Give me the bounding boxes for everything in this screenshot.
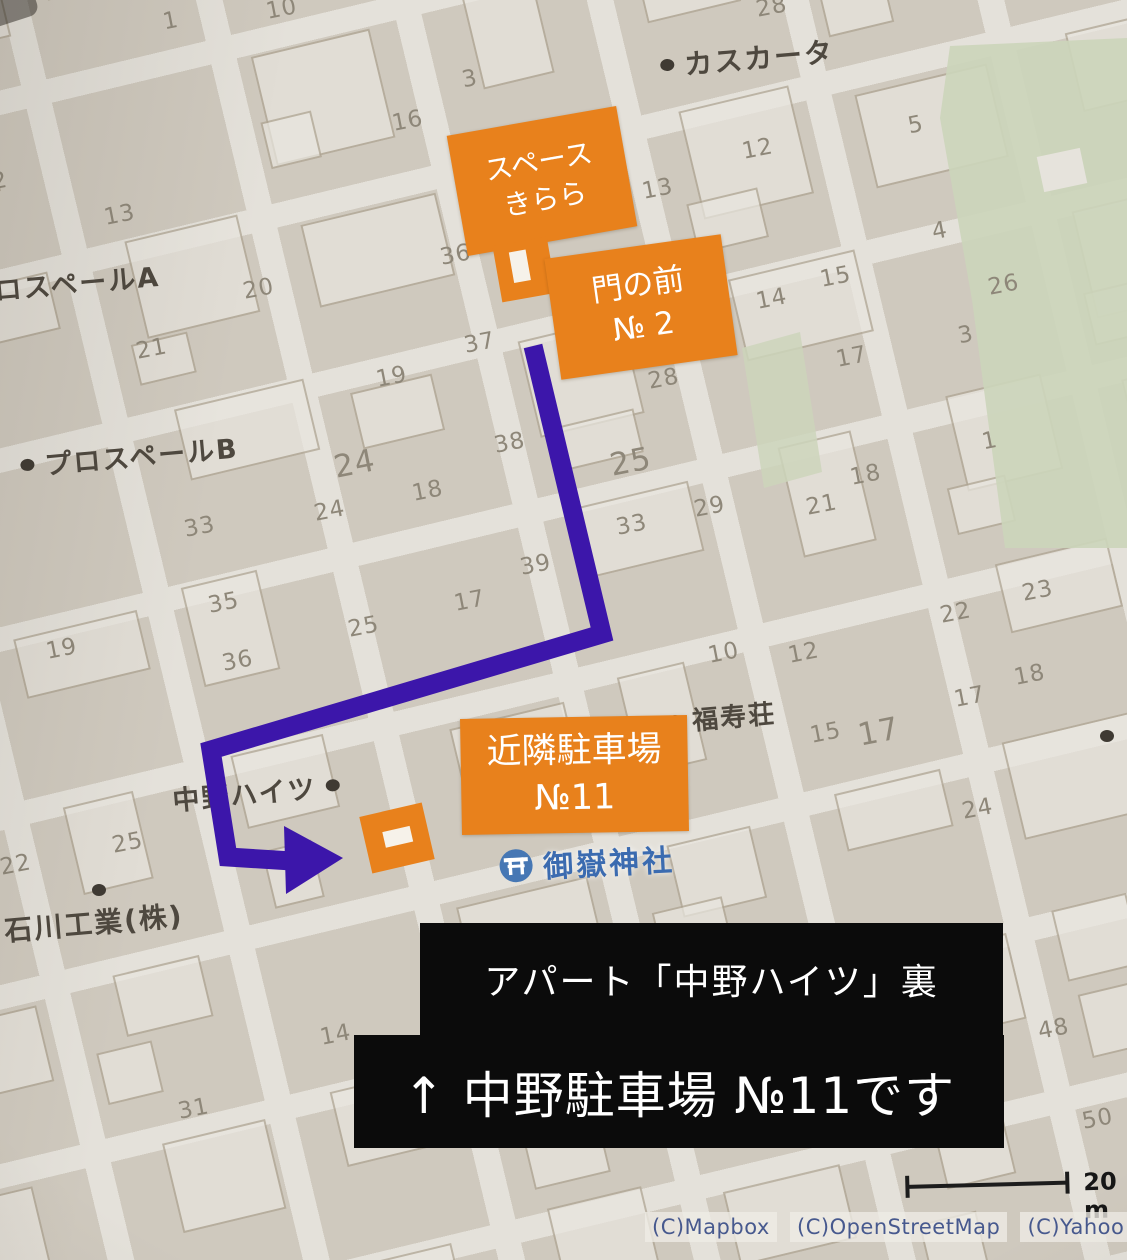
caption-apartment-note: アパート「中野ハイツ」裏 bbox=[420, 923, 1003, 1035]
caption-text: アパート「中野ハイツ」裏 bbox=[484, 953, 939, 1005]
map-photo: 御嶽神社 スペース きらら 門の前 № 2 近隣駐車場 №11 アパート「中野ハ… bbox=[0, 0, 1127, 1260]
building-block bbox=[260, 110, 322, 169]
building-block bbox=[300, 193, 455, 308]
building-block bbox=[1065, 13, 1127, 112]
building-block bbox=[262, 840, 325, 909]
building-block bbox=[1051, 893, 1127, 982]
building-block bbox=[995, 537, 1123, 633]
building-block bbox=[1121, 351, 1127, 460]
building-block bbox=[629, 0, 741, 23]
torii-icon bbox=[497, 847, 535, 885]
caption-parking-note: ↑ 中野駐車場 №11です bbox=[354, 1035, 1004, 1148]
map-credits: (C)Mapbox (C)OpenStreetMap (C)Yahoo Japa bbox=[645, 1215, 1127, 1239]
parking-slot-mark bbox=[509, 250, 531, 283]
building-block bbox=[13, 610, 151, 699]
annotation-gate-front: 門の前 № 2 bbox=[544, 234, 737, 380]
map-point-dot bbox=[326, 778, 341, 791]
annotation-nearby-parking: 近隣駐車場 №11 bbox=[460, 715, 689, 835]
building-block bbox=[854, 63, 1009, 188]
map-point-dot bbox=[92, 884, 106, 896]
annotation-line: 近隣駐車場 bbox=[460, 726, 688, 777]
building-block bbox=[162, 1119, 287, 1233]
building-block bbox=[112, 955, 213, 1037]
map-point-dot bbox=[1100, 730, 1114, 742]
credit-yahoo: (C)Yahoo Japa bbox=[1020, 1212, 1127, 1242]
map-point-dot bbox=[660, 58, 675, 71]
building-block bbox=[834, 769, 954, 852]
map-point-dot bbox=[20, 458, 35, 471]
building-block bbox=[0, 1005, 54, 1113]
building-block bbox=[96, 1040, 164, 1105]
credit-mapbox: (C)Mapbox bbox=[645, 1212, 777, 1242]
credit-openstreetmap: (C)OpenStreetMap bbox=[790, 1212, 1007, 1242]
shrine-name: 御嶽神社 bbox=[542, 835, 676, 886]
caption-text: ↑ 中野駐車場 №11です bbox=[403, 1056, 955, 1128]
building-block bbox=[947, 474, 1017, 535]
annotation-line: №11 bbox=[461, 773, 689, 824]
scale-tick-right bbox=[1065, 1172, 1070, 1194]
building-block bbox=[25, 0, 128, 1]
shrine-label-group: 御嶽神社 bbox=[497, 835, 676, 888]
parking-slot-mark bbox=[382, 826, 413, 848]
building-block bbox=[0, 1186, 57, 1260]
building-block bbox=[379, 1243, 476, 1260]
building-block bbox=[1078, 983, 1127, 1059]
place-label-text: 福寿荘 bbox=[691, 693, 778, 737]
